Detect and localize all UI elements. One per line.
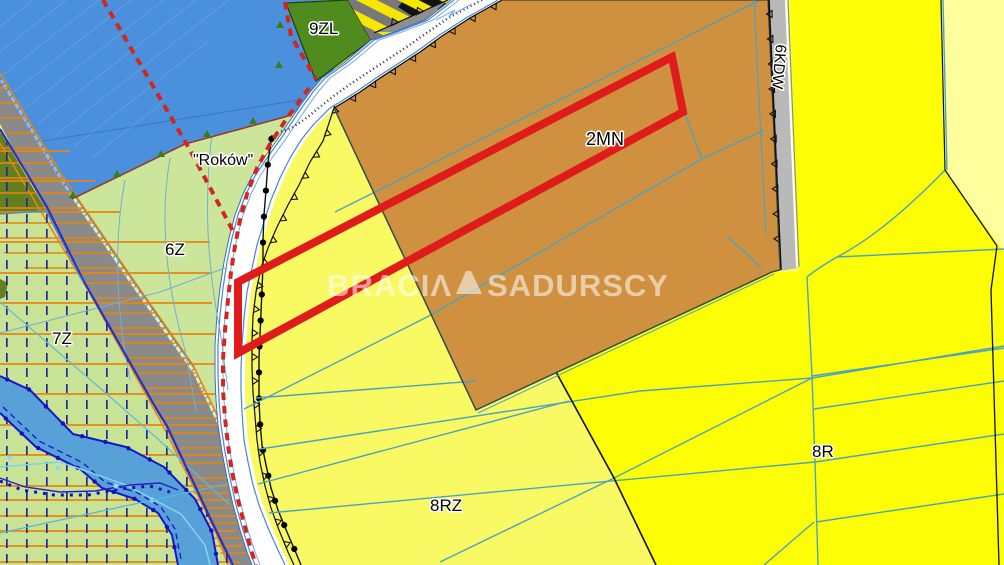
svg-text:8R: 8R	[812, 442, 834, 461]
svg-text:2MN: 2MN	[586, 129, 624, 149]
svg-text:9ZL: 9ZL	[309, 19, 338, 38]
svg-text:6Z: 6Z	[165, 240, 185, 259]
svg-text:7Z: 7Z	[52, 329, 72, 348]
svg-text:SADURSCY: SADURSCY	[487, 268, 669, 303]
svg-text:8RZ: 8RZ	[430, 496, 462, 515]
svg-text:BRACIΛ: BRACIΛ	[327, 268, 452, 303]
svg-text:"Roków": "Roków"	[193, 152, 253, 169]
